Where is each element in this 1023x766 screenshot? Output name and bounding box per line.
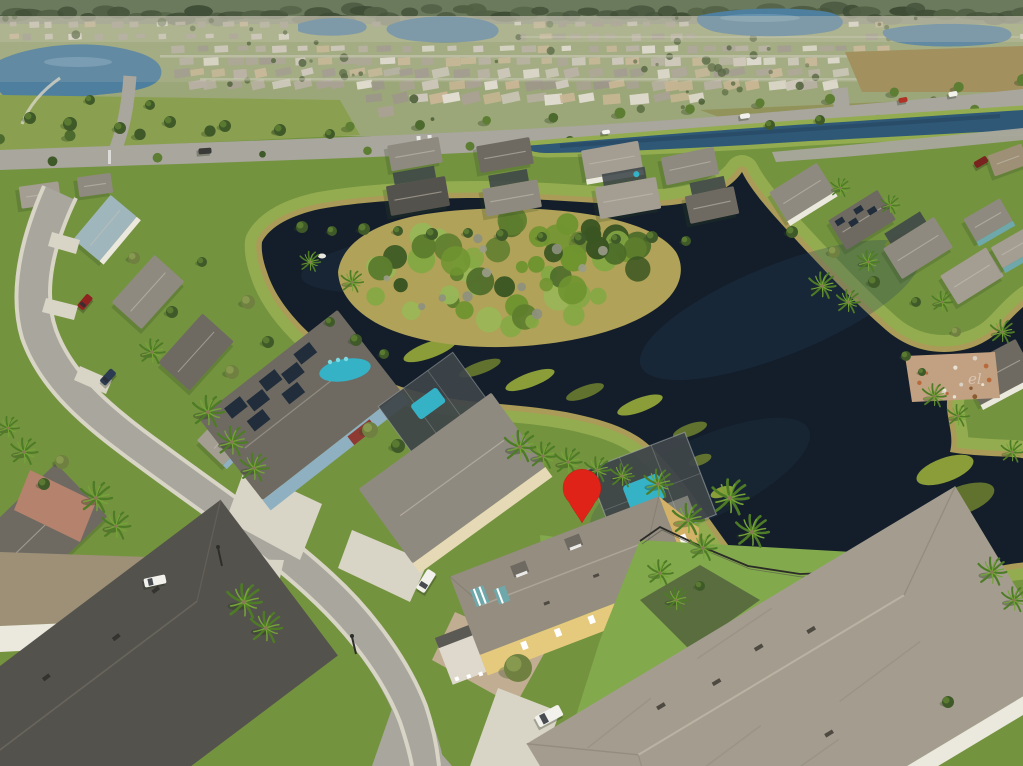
island-bare-tree xyxy=(552,244,562,254)
island-bare-tree xyxy=(578,264,586,272)
patio-furniture-dot xyxy=(917,381,921,385)
boulevard-tree xyxy=(482,116,491,125)
boulevard-tree xyxy=(890,87,899,96)
shrub-highlight xyxy=(912,298,918,304)
shrub-highlight xyxy=(816,116,822,122)
shrub-highlight xyxy=(427,229,434,236)
island-bare-tree xyxy=(482,268,491,277)
shrub-highlight xyxy=(394,227,400,233)
island-tree xyxy=(476,307,502,333)
dirt-field xyxy=(845,46,1023,92)
patio-furniture-dot xyxy=(959,383,963,387)
boulevard-tree xyxy=(685,104,695,114)
distant-house xyxy=(603,93,621,104)
boulevard-tree xyxy=(615,108,626,119)
shrub-highlight xyxy=(326,318,332,324)
shrub-highlight xyxy=(943,697,950,704)
island-tree xyxy=(528,256,545,273)
horizon-tree xyxy=(280,6,302,15)
pool-lounger xyxy=(344,357,348,361)
island-tree xyxy=(494,276,515,297)
patio-furniture-dot xyxy=(972,394,977,399)
island-bare-tree xyxy=(473,234,482,243)
boulevard-tree xyxy=(466,142,475,151)
white-bird-dot xyxy=(318,254,326,259)
vehicle-body xyxy=(198,148,211,155)
shrub-highlight xyxy=(696,582,702,588)
distant-tree xyxy=(227,81,233,87)
pool-lounger xyxy=(336,358,340,362)
boulevard-tree xyxy=(48,156,58,166)
shrub-highlight xyxy=(220,121,227,128)
shrub-highlight xyxy=(86,96,92,102)
island-tree xyxy=(402,301,421,320)
crosswalk-stripe xyxy=(108,150,111,164)
horizon-tree xyxy=(184,5,213,18)
distant-tree xyxy=(698,98,704,104)
island-bare-tree xyxy=(517,283,526,292)
distant-tree xyxy=(637,105,645,113)
shrub-highlight xyxy=(952,328,958,334)
island-tree xyxy=(394,278,408,292)
shrub-highlight xyxy=(538,233,544,239)
distant-tree xyxy=(409,94,418,103)
shrub-highlight xyxy=(919,369,923,373)
distant-tree xyxy=(737,86,743,92)
atmo-haze xyxy=(0,16,1023,42)
distant-house xyxy=(629,93,649,105)
shrub-highlight xyxy=(612,235,618,241)
shrub-highlight xyxy=(682,237,688,243)
shrub-highlight xyxy=(167,307,174,314)
shrub-highlight xyxy=(226,366,234,374)
shrub-highlight xyxy=(497,230,504,237)
shrub-highlight xyxy=(326,130,332,136)
distant-tree xyxy=(686,90,689,93)
boulevard-tree xyxy=(204,125,215,136)
shrub-highlight xyxy=(146,101,152,107)
shrub-highlight xyxy=(647,232,654,239)
shrub-highlight xyxy=(766,121,772,127)
island-tree xyxy=(485,237,510,262)
shrub-highlight xyxy=(506,656,521,671)
aerial-photo-scene: el xyxy=(0,0,1023,766)
shrub-highlight xyxy=(263,337,270,344)
boulevard-tree xyxy=(415,120,425,130)
island-tree xyxy=(455,301,473,319)
shrub-highlight xyxy=(829,247,836,254)
shrub-highlight xyxy=(39,479,46,486)
distant-tree xyxy=(431,117,435,121)
shrub-highlight xyxy=(165,117,172,124)
shrub-highlight xyxy=(351,335,358,342)
shrub-highlight xyxy=(198,258,204,264)
lamp-head xyxy=(216,545,220,549)
lamp-head xyxy=(350,634,354,638)
watermark: el xyxy=(968,370,982,388)
distant-tree xyxy=(681,105,685,109)
island-bare-tree xyxy=(462,291,472,301)
island-tree xyxy=(625,256,650,281)
aerial-photo: el xyxy=(0,0,1023,766)
shrub-highlight xyxy=(359,224,366,231)
shrub-highlight xyxy=(902,352,908,358)
island-tree xyxy=(590,288,607,305)
distant-tree xyxy=(722,89,729,96)
island-bare-tree xyxy=(532,309,542,319)
distant-tree xyxy=(796,82,804,90)
island-tree xyxy=(563,304,585,326)
shrub-highlight xyxy=(787,227,794,234)
patio-furniture-dot xyxy=(953,395,956,398)
island-bare-tree xyxy=(418,303,425,310)
boulevard-tree xyxy=(134,129,145,140)
shrub-highlight xyxy=(380,350,386,356)
boulevard-tree xyxy=(549,113,559,123)
island-bare-tree xyxy=(384,275,390,281)
island-bare-tree xyxy=(439,294,446,301)
horizon-tree xyxy=(421,4,442,14)
boulevard-tree xyxy=(755,98,764,107)
island-tree xyxy=(539,278,553,292)
island-tree xyxy=(366,287,385,306)
patio-furniture-dot xyxy=(973,356,978,361)
boulevard-tree xyxy=(363,146,372,155)
brick-patio xyxy=(905,352,1000,402)
shrub-highlight xyxy=(115,123,122,130)
patio-house-backyard xyxy=(905,352,1000,402)
boulevard-tree xyxy=(825,94,835,104)
island-tree xyxy=(558,275,587,304)
shrub-highlight xyxy=(64,118,72,126)
shrub-highlight xyxy=(328,227,334,233)
shrub-highlight xyxy=(297,222,304,229)
island-bare-tree xyxy=(479,245,487,253)
boulevard-tree xyxy=(153,153,163,163)
boulevard-tree xyxy=(259,151,266,158)
shrub-highlight xyxy=(56,456,64,464)
distant-house xyxy=(576,81,591,91)
shrub-highlight xyxy=(392,440,400,448)
shrub-highlight xyxy=(25,113,32,120)
shrub-highlight xyxy=(363,423,372,432)
patio-furniture-dot xyxy=(987,378,992,383)
patio-furniture-dot xyxy=(984,364,989,369)
island-bare-tree xyxy=(598,246,608,256)
boulevard-tree xyxy=(345,122,354,131)
shrub-highlight xyxy=(275,125,282,132)
shrub-highlight xyxy=(575,234,582,241)
shrub-highlight xyxy=(464,229,470,235)
horizon-tree xyxy=(578,7,599,15)
boulevard-tree xyxy=(64,130,75,141)
island-tree xyxy=(516,261,528,273)
patio-furniture-dot xyxy=(946,392,949,395)
shrub-highlight xyxy=(242,296,250,304)
patio-furniture-dot xyxy=(953,366,957,370)
shrub-highlight xyxy=(129,253,136,260)
horizon-tree xyxy=(531,7,549,15)
shrub-highlight xyxy=(869,277,876,284)
pool-lounger xyxy=(328,360,332,364)
boulevard-tree xyxy=(954,82,964,92)
island-tree xyxy=(441,246,471,276)
